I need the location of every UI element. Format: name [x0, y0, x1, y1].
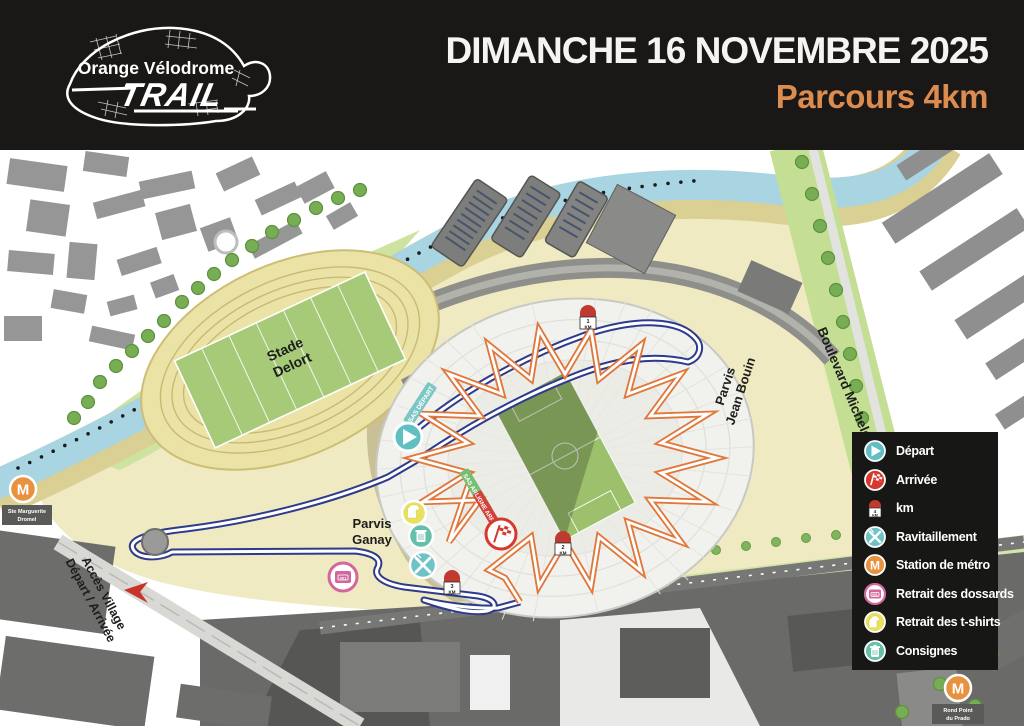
legend-item-depart: Départ [864, 438, 998, 464]
svg-text:M: M [17, 482, 30, 499]
km-marker-3: 3 KM [444, 570, 460, 595]
arrivee-icon [864, 469, 886, 491]
legend: Départ Arrivée 4 [852, 432, 998, 670]
bib-pickup-marker: 001 [329, 563, 357, 591]
depart-icon [864, 440, 886, 462]
svg-text:001: 001 [340, 576, 347, 581]
svg-text:001: 001 [872, 593, 878, 597]
bib-icon: 001 [864, 583, 886, 605]
start-marker [394, 423, 422, 451]
ravitaillement-marker [410, 552, 436, 578]
metro-left-label-1: Ste Marguerite [8, 509, 46, 515]
consignes-icon [864, 640, 886, 662]
svg-text:KM: KM [585, 325, 592, 330]
finish-marker [486, 519, 516, 549]
svg-text:M: M [870, 559, 880, 573]
svg-text:M: M [952, 681, 965, 698]
event-poster: Orange Vélodrome TRAIL DIMANCHE 16 NOVEM… [0, 0, 1024, 726]
logo-main-text: TRAIL [116, 77, 226, 114]
metro-icon: M [864, 554, 886, 576]
legend-item-ravitaillement: Ravitaillement [864, 524, 998, 550]
consignes-marker [409, 524, 433, 548]
logo-top-text: Orange Vélodrome [78, 58, 235, 78]
event-logo: Orange Vélodrome TRAIL [38, 8, 278, 148]
legend-item-metro: M Station de métro [864, 552, 998, 578]
km-marker-icon: 4 KM [864, 497, 886, 519]
svg-text:KM: KM [560, 551, 567, 556]
event-date: DIMANCHE 16 NOVEMBRE 2025 [388, 30, 988, 72]
event-subtitle: Parcours 4km [388, 78, 988, 116]
legend-item-dossards: 001 Retrait des dossards [864, 581, 998, 607]
metro-right-label-1: Rond Point [943, 708, 972, 714]
parvis-ganay-label-2: Ganay [352, 532, 393, 547]
legend-item-tshirts: Retrait des t-shirts [864, 609, 998, 635]
tshirt-icon [864, 611, 886, 633]
header: Orange Vélodrome TRAIL DIMANCHE 16 NOVEM… [0, 0, 1024, 150]
km-marker-1: 1 KM [580, 305, 596, 330]
svg-text:KM: KM [449, 590, 456, 595]
ravitaillement-icon [864, 526, 886, 548]
metro-right-label-2: du Prado [946, 716, 970, 722]
km-marker-2: 2 KM [555, 531, 571, 556]
roundabout [215, 231, 237, 253]
svg-text:KM: KM [872, 514, 878, 518]
legend-item-arrivee: Arrivée [864, 467, 998, 493]
metro-left-label-2: Dromel [18, 517, 37, 523]
legend-item-consignes: Consignes [864, 638, 998, 664]
legend-item-km: 4 KM km [864, 495, 998, 521]
spiral-ramp [142, 529, 168, 555]
tshirt-pickup-marker [402, 501, 426, 525]
parvis-ganay-label-1: Parvis [352, 516, 391, 531]
